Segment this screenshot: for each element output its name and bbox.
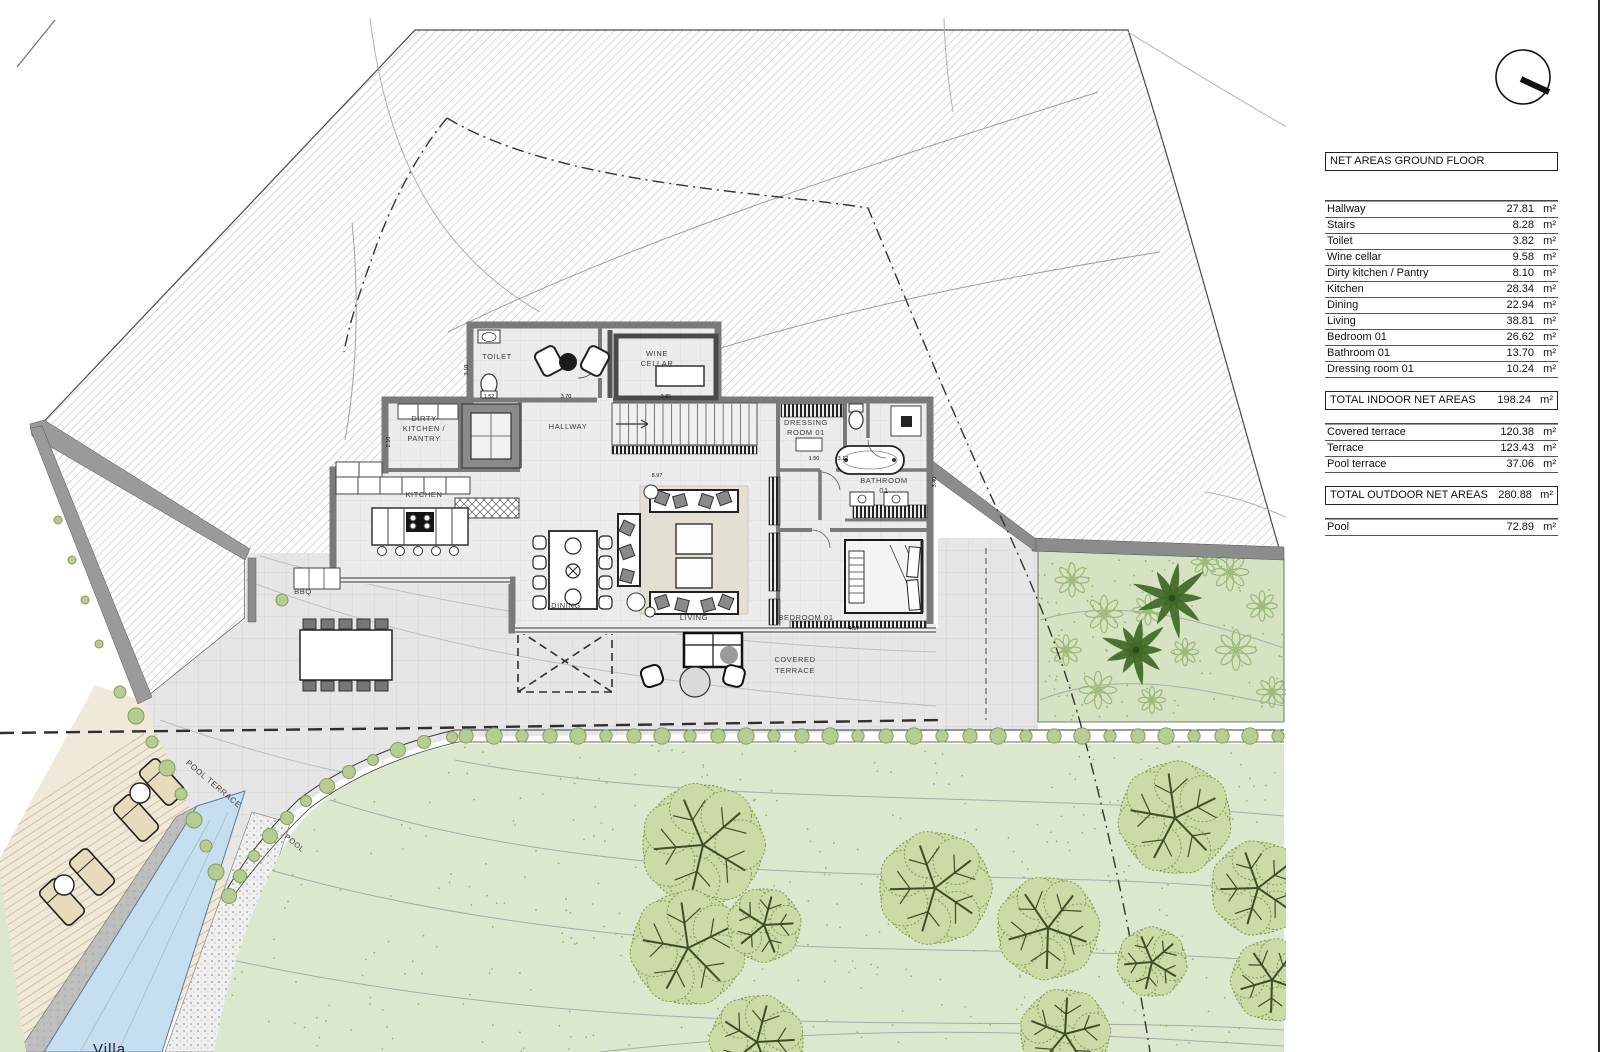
room-label: TERRACE — [775, 666, 815, 675]
total-outdoor-label: TOTAL OUTDOOR NET AREAS — [1330, 489, 1488, 502]
area-row: Dressing room 0110.24m² — [1325, 362, 1558, 378]
room-label: LIVING — [680, 613, 708, 622]
area-row: Hallway27.81m² — [1325, 201, 1558, 218]
total-indoor-value: 198.24 — [1485, 394, 1531, 407]
stairs — [612, 403, 757, 454]
area-row: Wine cellar9.58m² — [1325, 250, 1558, 266]
net-areas-panel: NET AREAS GROUND FLOOR Hallway27.81m²Sta… — [1325, 152, 1558, 536]
room-label: DIRTY — [411, 414, 436, 423]
total-indoor-row: TOTAL INDOOR NET AREAS 198.24 m² — [1325, 391, 1558, 410]
panel-title: NET AREAS GROUND FLOOR — [1325, 152, 1558, 171]
outdoor-area-rows: Covered terrace120.38m²Terrace123.43m²Po… — [1325, 423, 1558, 473]
room-label: KITCHEN — [405, 490, 442, 499]
area-row: Toilet3.82m² — [1325, 234, 1558, 250]
tree — [880, 832, 992, 945]
room-label: COVERED — [774, 655, 815, 664]
total-indoor-unit: m² — [1531, 394, 1553, 407]
area-row: Dining22.94m² — [1325, 298, 1558, 314]
dimension-label: 2.10 — [386, 437, 392, 448]
room-label: BBQ — [294, 587, 312, 596]
dimension-label: 1.50 — [809, 456, 820, 462]
sheet: TOILETWINECELLARHALLWAYDIRTYKITCHEN /PAN… — [0, 0, 1602, 1052]
room-label: CELLAR — [641, 359, 674, 368]
room-label: TOILET — [482, 352, 512, 361]
area-row: Dirty kitchen / Pantry8.10m² — [1325, 266, 1558, 282]
dimension-label: 3.85 — [661, 394, 672, 400]
room-label: PANTRY — [407, 434, 440, 443]
garden — [1038, 548, 1288, 722]
total-outdoor-row: TOTAL OUTDOOR NET AREAS 280.88 m² — [1325, 486, 1558, 505]
total-indoor-label: TOTAL INDOOR NET AREAS — [1330, 394, 1485, 407]
dimension-label: 8.97 — [652, 473, 663, 479]
room-label: ROOM 01 — [787, 428, 825, 437]
area-row: Covered terrace120.38m² — [1325, 424, 1558, 441]
room-label: DRESSING — [784, 418, 828, 427]
area-row: Pool terrace37.06m² — [1325, 457, 1558, 473]
total-outdoor-unit: m² — [1532, 489, 1553, 502]
area-row: Bathroom 0113.70m² — [1325, 346, 1558, 362]
dimension-label: 3.10 — [464, 365, 470, 376]
room-label: BEDROOM 01 — [778, 613, 833, 622]
area-row: Bedroom 0126.62m² — [1325, 330, 1558, 346]
dimension-label: 1.52 — [484, 394, 495, 400]
dimension-label: 4.17 — [849, 626, 860, 632]
pool-area-rows: Pool72.89m² — [1325, 518, 1558, 536]
room-label: HALLWAY — [549, 422, 588, 431]
elevator — [462, 404, 520, 468]
dimension-label: 3.40 — [932, 477, 938, 488]
area-row: Living38.81m² — [1325, 314, 1558, 330]
dimension-label: 3.12 — [838, 456, 849, 462]
area-row: Kitchen28.34m² — [1325, 282, 1558, 298]
room-label: DINING — [551, 601, 581, 610]
room-label: KITCHEN / — [403, 424, 446, 433]
room-label: WINE — [646, 349, 668, 358]
compass-icon — [1496, 50, 1550, 104]
room-label: BATHROOM — [860, 476, 908, 485]
tree — [643, 784, 765, 907]
area-row: Terrace123.43m² — [1325, 441, 1558, 457]
indoor-area-rows: Hallway27.81m²Stairs8.28m²Toilet3.82m²Wi… — [1325, 200, 1558, 378]
sheet-right-border — [1598, 0, 1600, 1052]
bed — [845, 540, 922, 613]
total-outdoor-value: 280.88 — [1488, 489, 1532, 502]
sheet-footer-clipped-text: Villa — [93, 1041, 126, 1052]
dimension-label: 3.70 — [561, 394, 572, 400]
wine-cellar-table — [656, 366, 704, 386]
tree — [1212, 841, 1306, 935]
area-row: Stairs8.28m² — [1325, 218, 1558, 234]
room-label: 01 — [879, 486, 889, 495]
area-row: Pool72.89m² — [1325, 519, 1558, 536]
